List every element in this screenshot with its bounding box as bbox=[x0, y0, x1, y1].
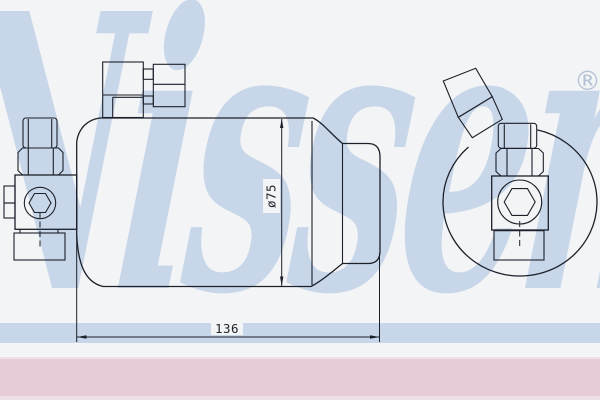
footer-bar-edge bbox=[0, 396, 600, 400]
dimension-length: 136 bbox=[77, 235, 380, 342]
footer-bar bbox=[0, 357, 600, 400]
catalog-product-image: Nissens ® bbox=[0, 0, 600, 400]
hex-socket bbox=[29, 194, 51, 213]
hex-nut bbox=[496, 149, 543, 177]
dimension-diameter: ø75 bbox=[263, 119, 283, 287]
cylinder-outline bbox=[77, 118, 380, 287]
hex-nut bbox=[18, 148, 63, 175]
top-fitting bbox=[103, 62, 185, 118]
end-fitting-block bbox=[492, 123, 549, 260]
side-fitting-block bbox=[4, 118, 77, 260]
drier-side-view: ø75 136 bbox=[4, 62, 380, 342]
dimension-length-label: 136 bbox=[215, 321, 239, 336]
end-circle bbox=[443, 130, 597, 276]
dimension-diameter-label: ø75 bbox=[264, 184, 279, 208]
hex-socket bbox=[504, 189, 535, 216]
drier-end-view bbox=[443, 68, 597, 276]
technical-drawing: ø75 136 bbox=[0, 0, 600, 400]
angled-pipe bbox=[443, 68, 502, 137]
